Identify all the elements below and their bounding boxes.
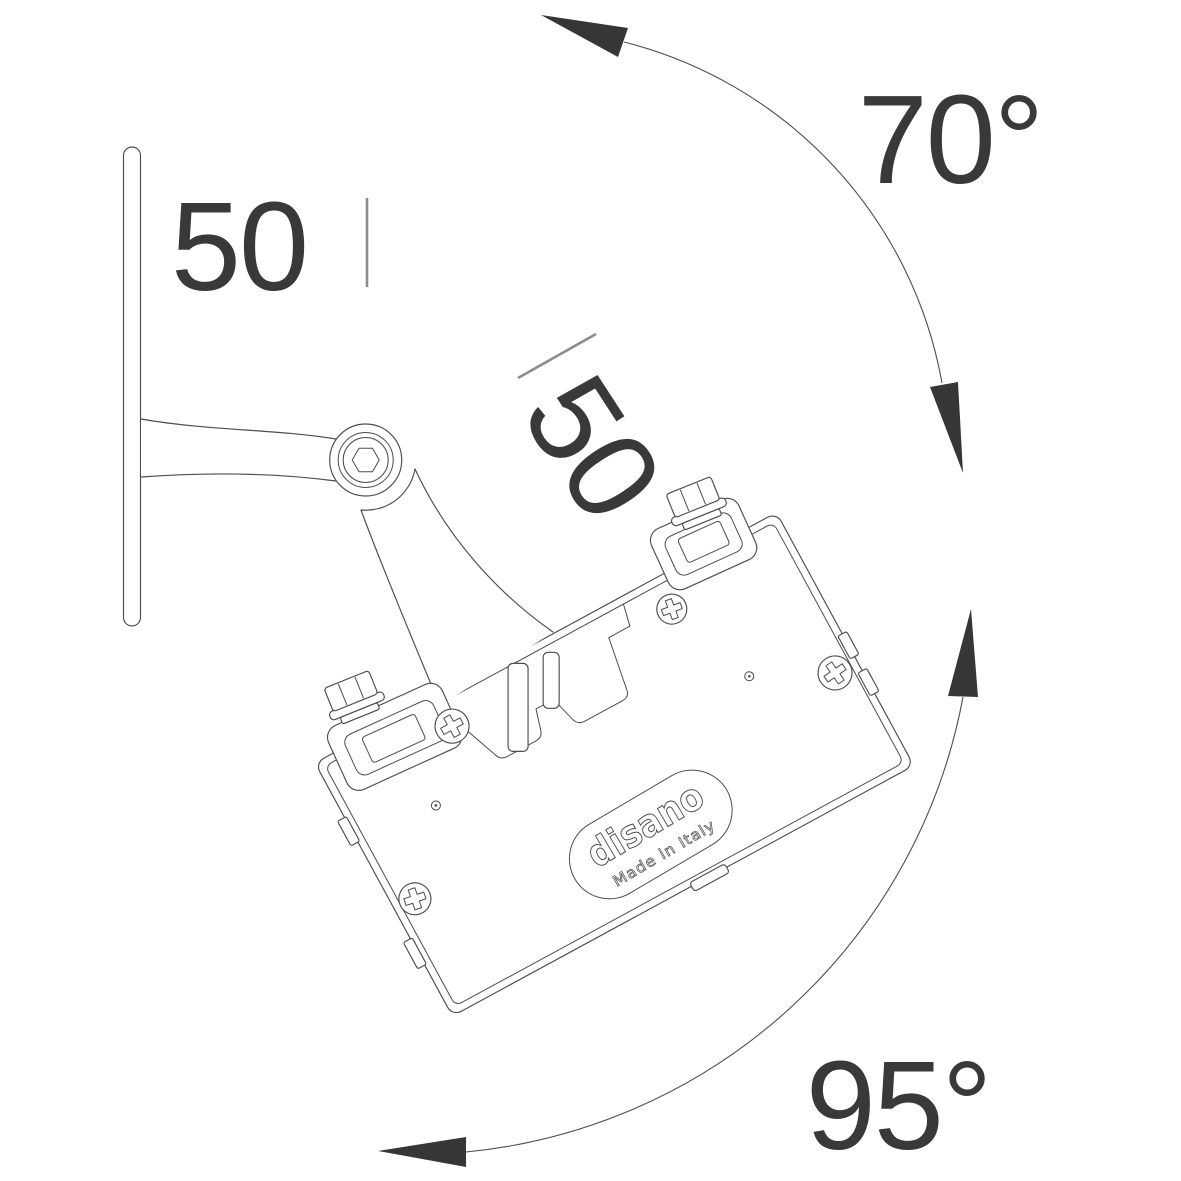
arc-arrowhead-down-end bbox=[378, 1137, 466, 1167]
angle-label-70: 70° bbox=[858, 69, 1043, 210]
angle-label-95: 95° bbox=[806, 1035, 991, 1176]
pivot-boss bbox=[330, 424, 402, 496]
technical-drawing-canvas: disano Made in Italy bbox=[0, 0, 1181, 1181]
wall-mount-plate bbox=[124, 147, 141, 626]
dimension-label-arm-length: 50 bbox=[497, 351, 689, 542]
cable-clip-finger bbox=[543, 652, 559, 708]
floodlight-rotation-diagram: disano Made in Italy bbox=[0, 0, 1181, 1181]
arc-arrowhead-up-start bbox=[541, 15, 628, 57]
dimension-label-wall-offset: 50 bbox=[171, 176, 307, 317]
fixed-arm bbox=[141, 419, 336, 481]
pivot-joint bbox=[330, 424, 402, 496]
arc-arrowhead-up-end bbox=[930, 382, 963, 473]
arc-arrowhead-down-start bbox=[948, 609, 978, 697]
cable-clip-finger bbox=[508, 663, 528, 751]
